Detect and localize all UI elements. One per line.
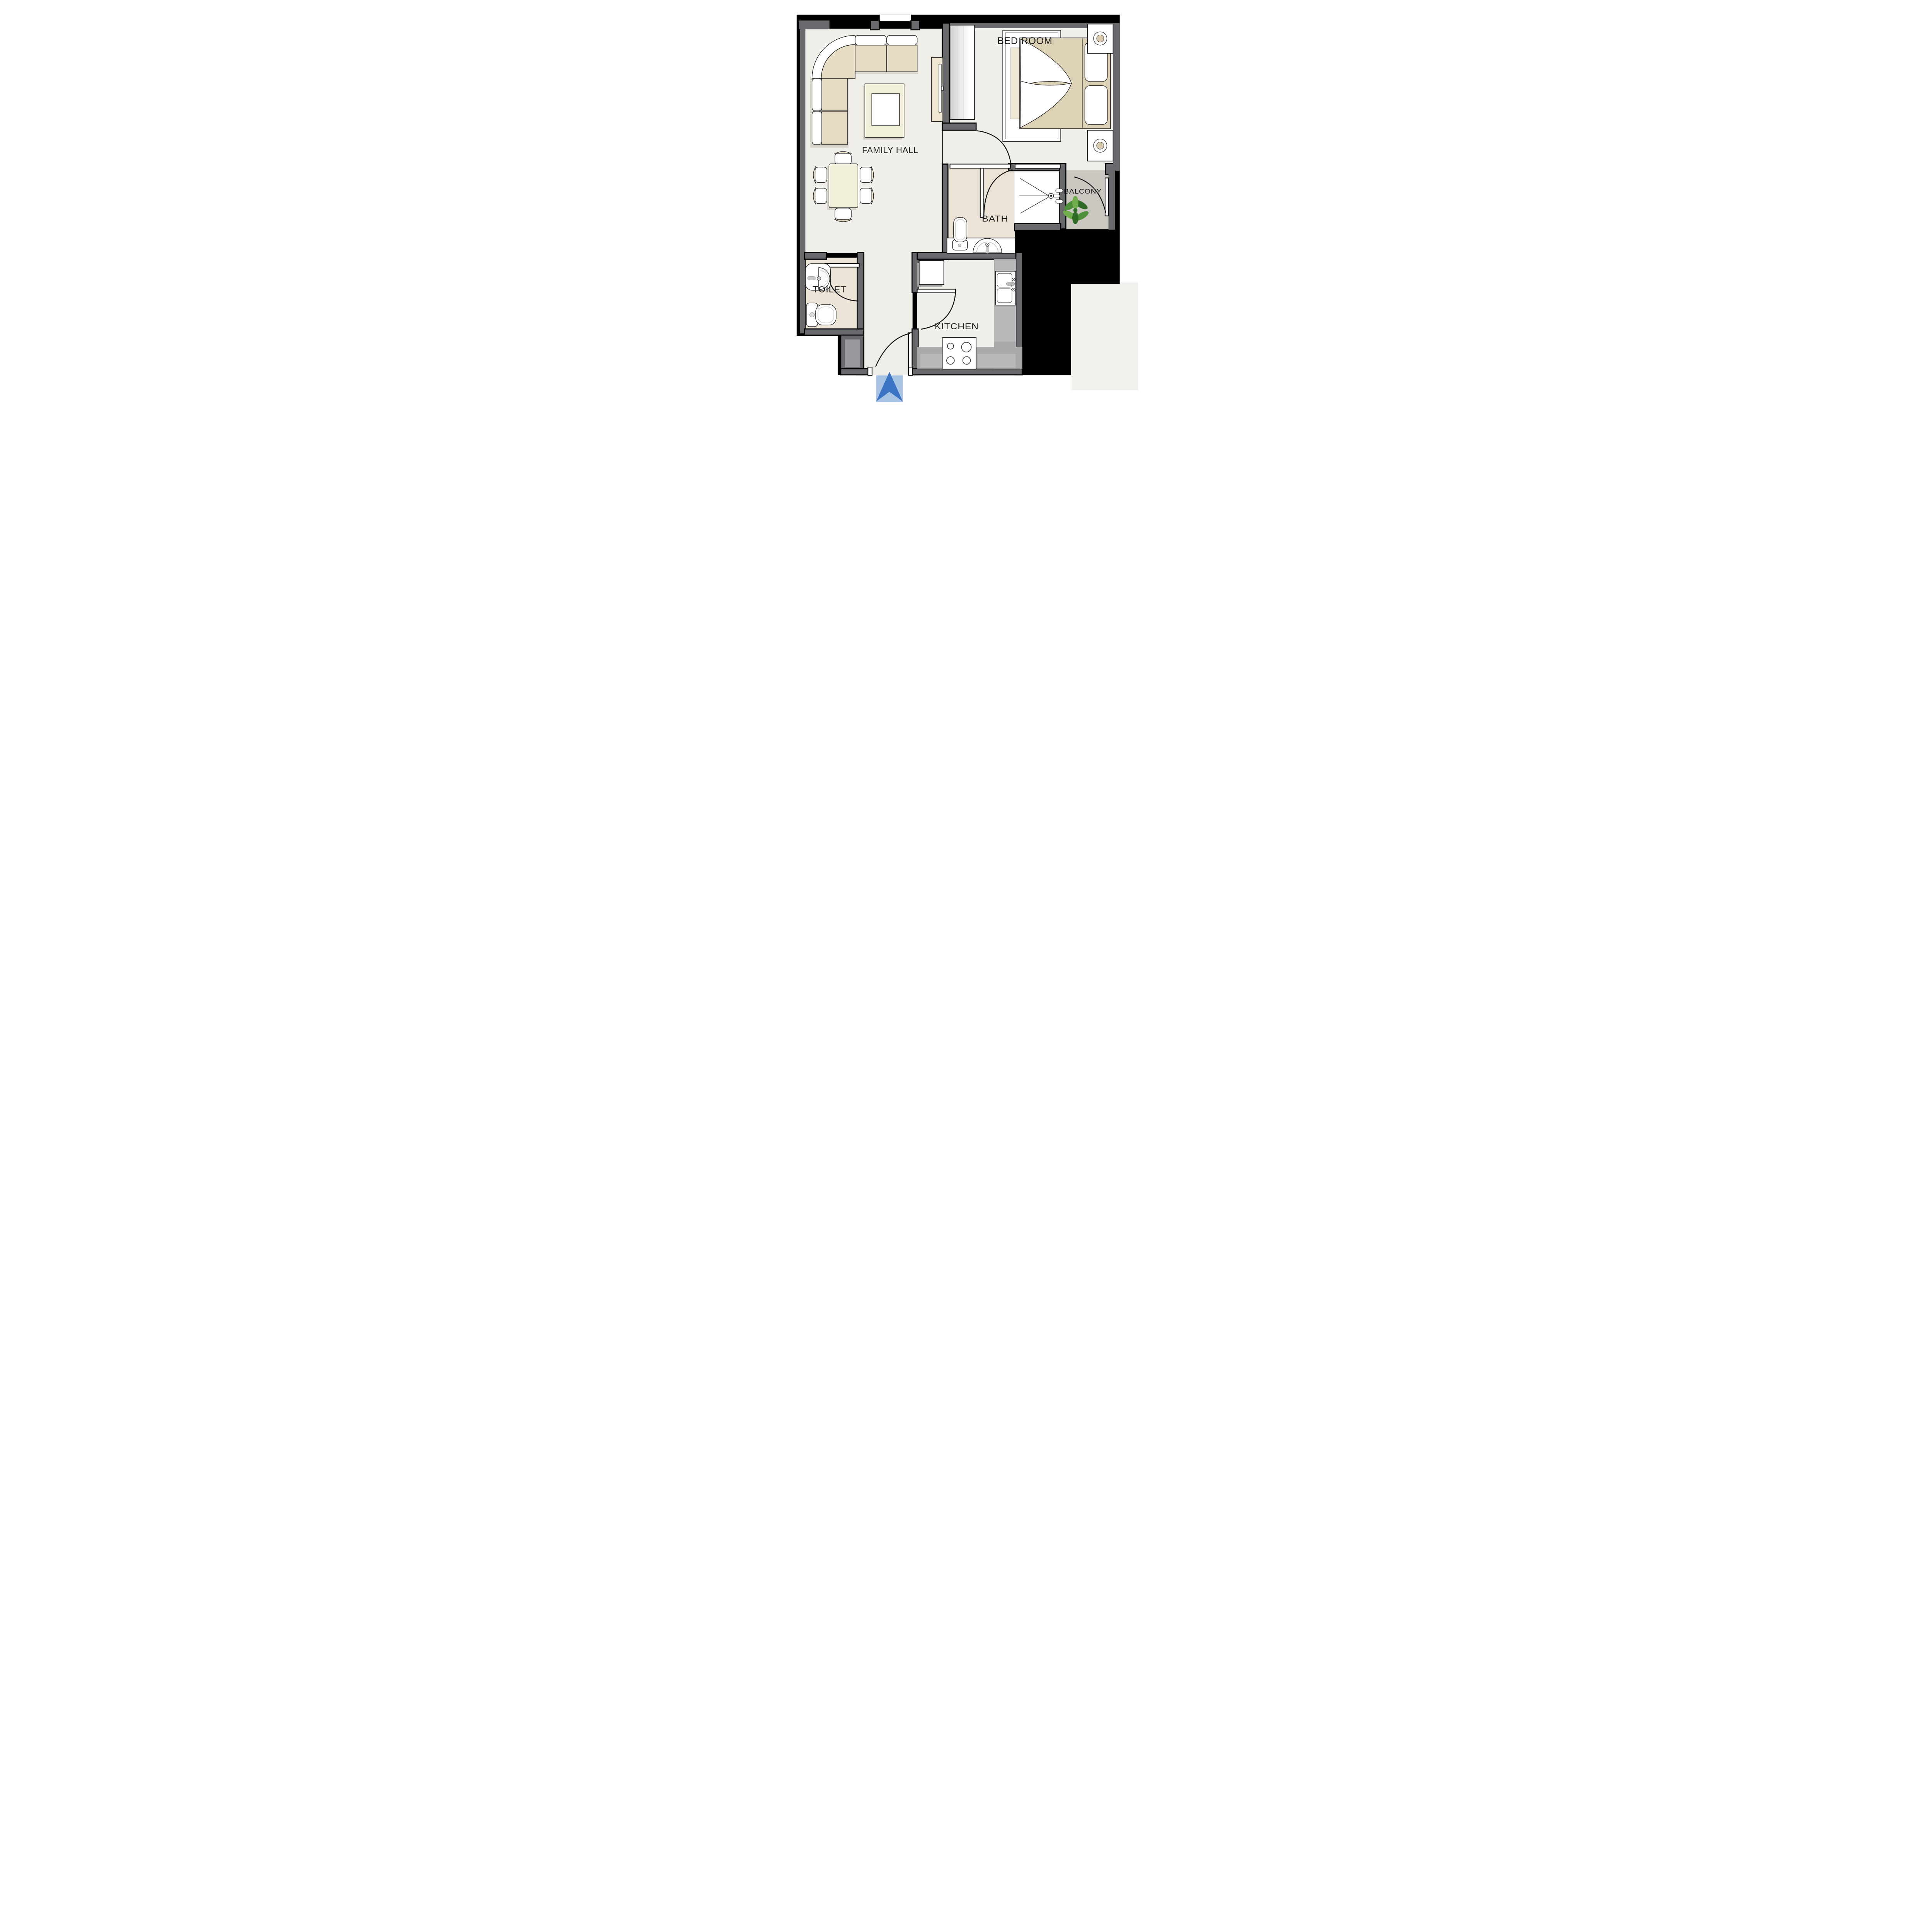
nightstand <box>1087 24 1113 53</box>
dining-chair <box>813 167 827 183</box>
bath-door-leaf <box>980 168 984 217</box>
wall-segment <box>942 123 976 130</box>
faucet-spout <box>808 276 816 280</box>
entry-door-leaf <box>908 333 912 369</box>
wall-segment <box>1015 224 1061 231</box>
wall-segment <box>1060 163 1066 229</box>
kitchen-label: KITCHEN <box>935 321 979 331</box>
nightstand <box>1087 130 1113 161</box>
floor-plan-svg: FAMILY HALL BED ROOM BATH BALCONY TOILET… <box>777 0 1155 407</box>
top-wall-notch <box>880 15 911 21</box>
entrance-marker <box>876 372 903 402</box>
tv <box>939 64 941 112</box>
pillow <box>1085 86 1107 125</box>
wall-segment <box>804 253 827 259</box>
wall-segment <box>911 20 920 30</box>
wall-segment <box>800 29 805 333</box>
dining-chair <box>835 151 852 165</box>
balcony-sliding-panel <box>1105 178 1109 216</box>
wall-segment <box>871 20 879 30</box>
shower-handle <box>1056 199 1063 203</box>
wall-segment <box>1113 23 1120 171</box>
bed-room-label: BED ROOM <box>997 36 1053 46</box>
kitchen-door-leaf <box>917 289 956 293</box>
toilet-door-leaf <box>825 264 859 267</box>
dining-table <box>829 164 858 207</box>
kitchen-sink <box>996 271 1016 305</box>
duct-shaft <box>845 339 859 367</box>
corridor-floor <box>861 253 913 375</box>
fridge <box>919 260 944 284</box>
bedroom-door-leaf <box>950 164 1011 168</box>
wall-segment <box>799 20 830 29</box>
faucet-spout <box>1007 282 1015 285</box>
wall-segment <box>942 23 950 124</box>
entry-door-jamb <box>868 367 872 375</box>
dining-chair <box>835 208 852 222</box>
dining-chair <box>813 188 827 204</box>
outside-area <box>1071 282 1138 390</box>
wall-segment <box>804 329 864 335</box>
floor-plan-page: FAMILY HALL BED ROOM BATH BALCONY TOILET… <box>777 0 1155 407</box>
balcony-floor <box>1065 170 1109 230</box>
family-hall-label: FAMILY HALL <box>862 145 918 155</box>
balcony-label: BALCONY <box>1064 187 1102 195</box>
tv-unit <box>932 58 944 122</box>
wardrobe <box>950 25 975 119</box>
bath-label: BATH <box>982 214 1008 223</box>
flush-button <box>810 313 815 317</box>
coffee-table <box>865 84 904 138</box>
wc-toilet <box>952 218 967 250</box>
dining-chair <box>860 188 874 204</box>
faucet-spout <box>986 246 989 253</box>
shower-handle <box>1056 189 1063 192</box>
sink-bowl <box>997 289 1012 303</box>
toilet-label: TOILET <box>813 284 847 294</box>
shower-window <box>1015 164 1060 168</box>
entry-door-jamb <box>908 367 913 375</box>
wc-toilet <box>806 303 836 327</box>
tv-bracket <box>941 86 943 90</box>
wall-segment <box>910 369 1022 375</box>
stove-hob <box>942 337 976 369</box>
wall-segment <box>1109 171 1115 230</box>
dining-chair <box>860 167 874 183</box>
flush-button <box>958 244 961 247</box>
wall-segment <box>841 369 871 375</box>
